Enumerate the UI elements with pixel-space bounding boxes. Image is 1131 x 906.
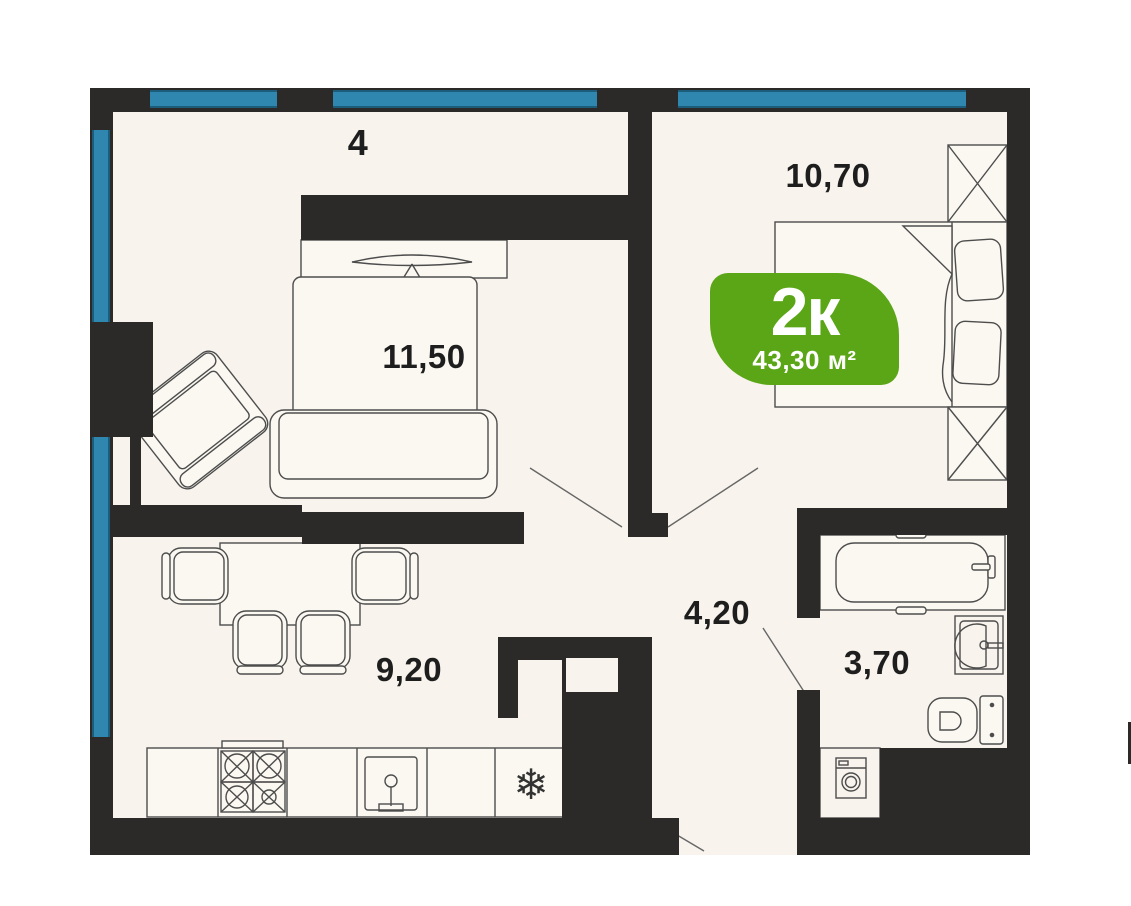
wall-bath-left-upper	[797, 535, 820, 618]
kitchen-counter	[147, 748, 565, 817]
chair	[233, 611, 287, 674]
window-top-3	[678, 90, 966, 108]
wall-bath-left-lower	[797, 690, 820, 855]
hall-area-label: 4,20	[652, 594, 782, 632]
wall-living-corner-arm	[130, 398, 141, 505]
wall-right	[1007, 88, 1030, 855]
window-left-2	[92, 437, 110, 737]
kitchen-area-label: 9,20	[344, 651, 474, 689]
wardrobe	[948, 145, 1007, 222]
chair	[162, 548, 228, 604]
sofa	[270, 410, 497, 498]
toilet	[928, 696, 1003, 744]
floor-plan: ❄	[0, 0, 1131, 906]
bathroom-area-label: 3,70	[812, 644, 942, 682]
badge-total-area: 43,30 м²	[752, 345, 856, 376]
chair	[352, 548, 418, 604]
badge-rooms-count: 2к	[771, 282, 839, 343]
washing-machine	[820, 748, 880, 818]
fridge-icon: ❄	[513, 760, 548, 809]
wall-living-kitchen-b	[302, 512, 524, 544]
bedroom-area-label: 10,70	[758, 157, 898, 195]
wall-bottom-left	[90, 818, 679, 855]
bathtub	[820, 531, 1005, 614]
window-top-2	[333, 90, 597, 108]
bathroom-sink	[955, 616, 1003, 674]
wall-kitchen-hall-column	[498, 637, 518, 718]
living-area-label: 11,50	[354, 338, 494, 376]
wall-corner-block	[880, 748, 1030, 855]
window-left-1	[92, 130, 110, 322]
wall-living-bedroom	[628, 112, 652, 515]
built-in-niche	[301, 195, 652, 240]
apartment-type-badge: 2к 43,30 м²	[710, 273, 899, 385]
wall-bedroom-bath	[797, 508, 1030, 535]
wall-window-pier-left	[90, 322, 153, 437]
window-top-1	[150, 90, 277, 108]
wall-living-bedroom-stub	[628, 513, 668, 537]
unit-number-label: 4	[338, 122, 378, 164]
chair	[296, 611, 350, 674]
wardrobe	[948, 407, 1007, 480]
wall-living-kitchen-a	[112, 505, 302, 537]
vent-duct-notch	[566, 658, 618, 692]
